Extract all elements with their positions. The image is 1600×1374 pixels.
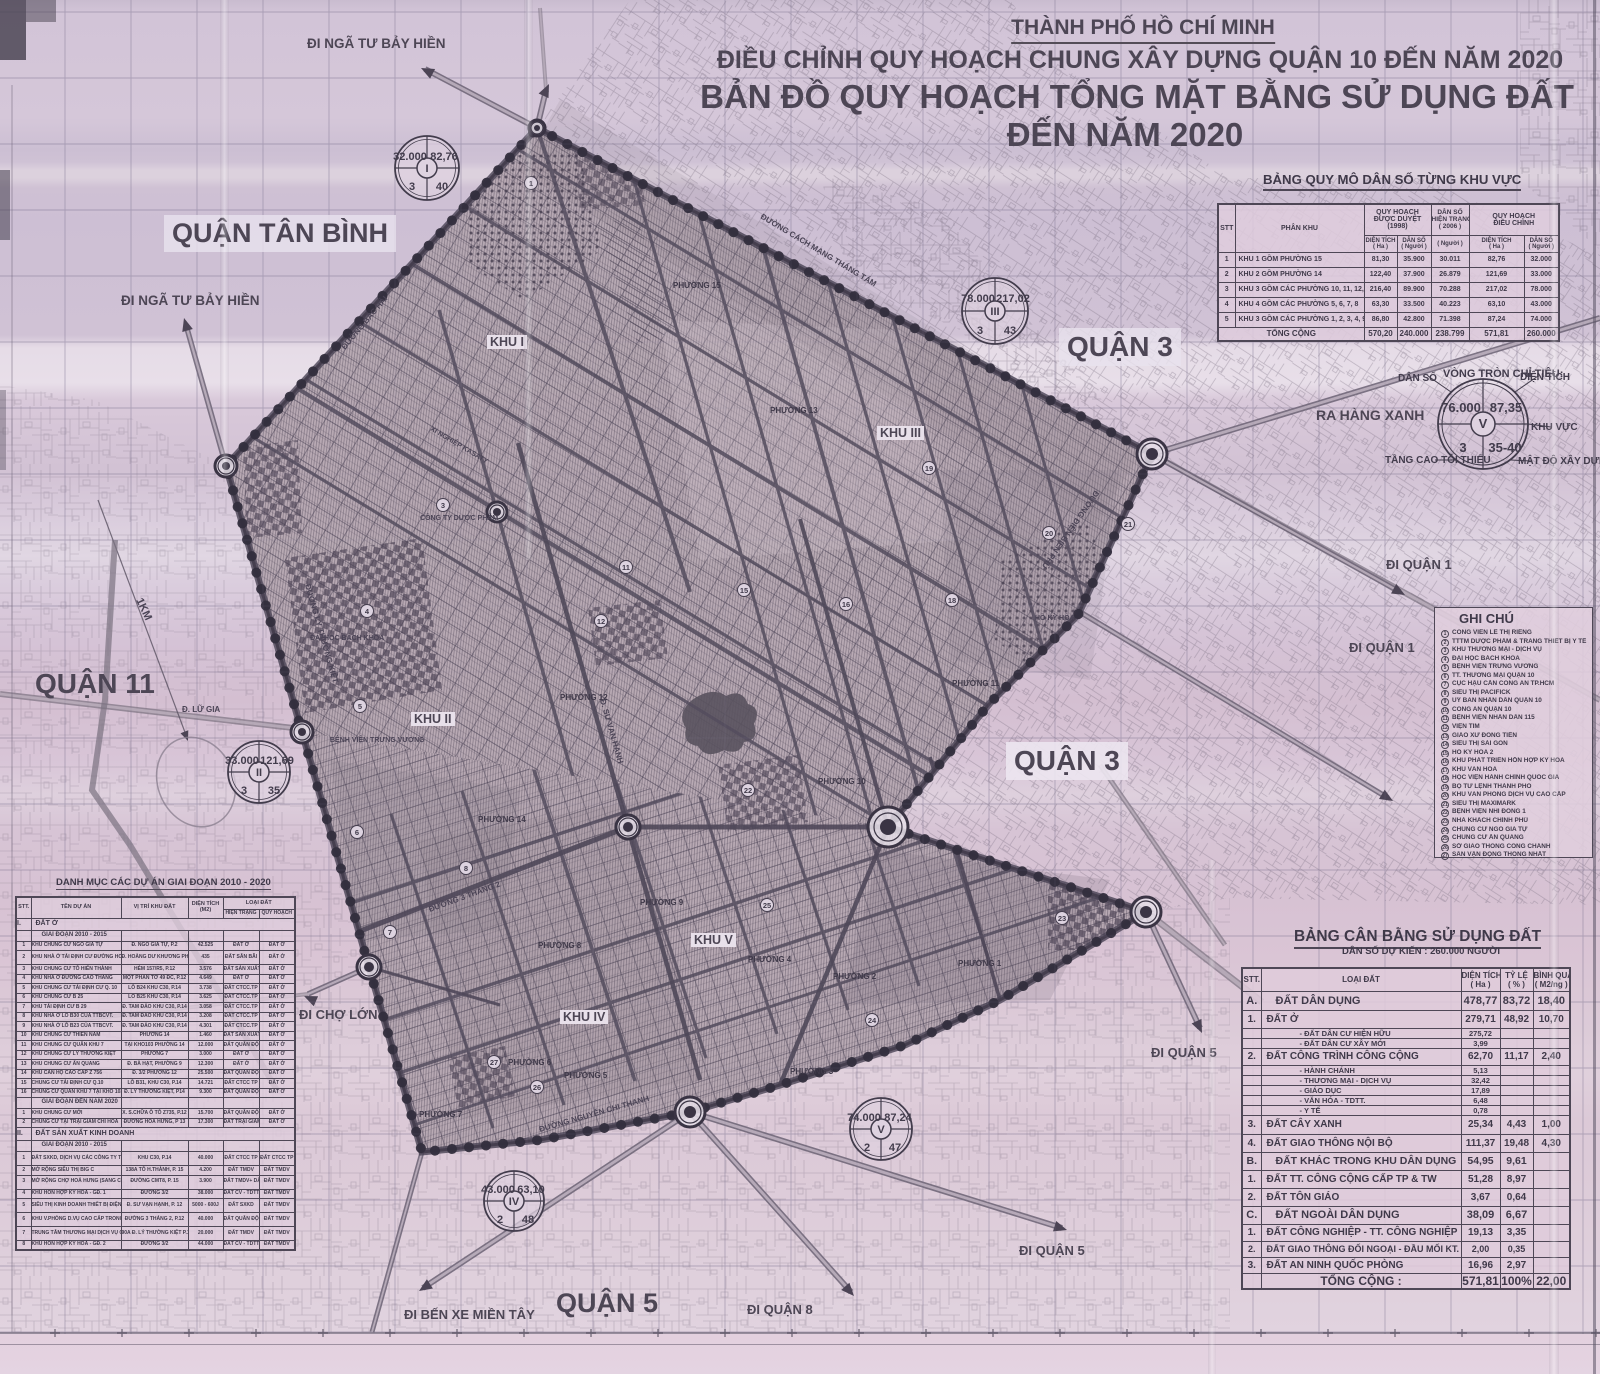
svg-text:2: 2: [864, 1142, 870, 1154]
svg-text:PHƯỜNG 6: PHƯỜNG 6: [508, 1058, 552, 1067]
svg-text:III: III: [990, 306, 999, 318]
svg-text:74.000: 74.000: [847, 1112, 881, 1124]
svg-text:12: 12: [597, 617, 605, 626]
svg-text:63,10: 63,10: [517, 1184, 545, 1196]
svg-text:6: 6: [355, 828, 359, 837]
svg-text:43: 43: [1004, 325, 1016, 337]
svg-text:5: 5: [358, 702, 362, 711]
svg-text:PHƯỜNG 14: PHƯỜNG 14: [478, 815, 526, 824]
svg-text:HỒ KỲ HÒA: HỒ KỲ HÒA: [1035, 612, 1075, 622]
svg-text:ĐƯỜNG LÝ THƯỜNG KIỆT: ĐƯỜNG LÝ THƯỜNG KIỆT: [303, 583, 340, 684]
svg-text:82,76: 82,76: [430, 151, 458, 163]
svg-text:15: 15: [740, 586, 748, 595]
svg-text:3: 3: [1459, 440, 1466, 455]
svg-text:IV: IV: [509, 1196, 520, 1208]
svg-text:PHƯỜNG 9: PHƯỜNG 9: [640, 898, 684, 907]
svg-text:7: 7: [388, 928, 392, 937]
svg-text:35-40: 35-40: [1488, 440, 1521, 455]
svg-text:78.000: 78.000: [961, 293, 995, 305]
svg-text:ĐƯỜNG CÁCH MẠNG THÁNG TÁM: ĐƯỜNG CÁCH MẠNG THÁNG TÁM: [759, 212, 878, 289]
svg-text:76.000: 76.000: [1441, 400, 1481, 415]
svg-text:TẦNG CAO TỐI THIỂU: TẦNG CAO TỐI THIỂU: [1385, 452, 1491, 466]
svg-text:II: II: [256, 767, 262, 779]
svg-text:18: 18: [948, 596, 956, 605]
svg-text:I: I: [425, 163, 428, 175]
svg-text:V: V: [1479, 416, 1488, 431]
svg-text:19: 19: [925, 464, 933, 473]
svg-text:25: 25: [763, 901, 771, 910]
svg-text:Đ. SƯ VẠN HẠNH: Đ. SƯ VẠN HẠNH: [598, 698, 625, 765]
svg-text:24: 24: [868, 1016, 877, 1025]
svg-text:43.000: 43.000: [481, 1184, 515, 1196]
svg-text:11: 11: [622, 563, 630, 572]
svg-text:ĐƯỜNG BẮC HẢI: ĐƯỜNG BẮC HẢI: [340, 294, 390, 351]
svg-text:1KM: 1KM: [133, 596, 154, 622]
svg-text:3: 3: [441, 501, 445, 510]
svg-text:ĐƯỜNG 3 THÁNG 2: ĐƯỜNG 3 THÁNG 2: [428, 879, 502, 913]
svg-text:23: 23: [1058, 914, 1066, 923]
svg-text:PHƯỜNG 11: PHƯỜNG 11: [952, 679, 1000, 688]
svg-text:3: 3: [241, 785, 247, 797]
svg-text:35: 35: [268, 785, 280, 797]
svg-text:3: 3: [409, 181, 415, 193]
svg-text:16: 16: [842, 600, 850, 609]
svg-text:XI NGHIỆP KASATY: XI NGHIỆP KASATY: [429, 424, 490, 466]
svg-text:PHƯỜNG 5: PHƯỜNG 5: [564, 1071, 608, 1080]
svg-text:217,02: 217,02: [996, 293, 1030, 305]
svg-text:ĐƯỜNG NGUYỄN CHI THANH: ĐƯỜNG NGUYỄN CHI THANH: [538, 1094, 650, 1134]
svg-text:27: 27: [490, 1058, 498, 1067]
svg-text:CÔNG TY DƯỢC PHẨM: CÔNG TY DƯỢC PHẨM: [420, 513, 498, 522]
svg-text:PHƯỜNG 13: PHƯỜNG 13: [770, 406, 818, 415]
svg-text:2: 2: [497, 1214, 503, 1226]
svg-text:BỆNH VIỆN TRƯNG VƯƠNG: BỆNH VIỆN TRƯNG VƯƠNG: [330, 735, 425, 744]
svg-text:PHƯỜNG 2: PHƯỜNG 2: [833, 972, 877, 981]
svg-text:26: 26: [533, 1083, 541, 1092]
svg-text:PHƯỜNG 10: PHƯỜNG 10: [818, 777, 866, 786]
svg-text:PHƯỜNG 8: PHƯỜNG 8: [538, 941, 582, 950]
svg-text:121,69: 121,69: [260, 755, 294, 767]
svg-text:20: 20: [1045, 529, 1053, 538]
svg-text:PHƯỜNG 3: PHƯỜNG 3: [790, 1067, 834, 1076]
svg-text:PHƯỜNG 7: PHƯỜNG 7: [419, 1110, 463, 1119]
svg-text:32.000: 32.000: [393, 151, 427, 163]
svg-text:33.000: 33.000: [225, 755, 259, 767]
svg-text:22: 22: [744, 786, 752, 795]
svg-text:87,24: 87,24: [884, 1112, 912, 1124]
svg-text:87,35: 87,35: [1490, 400, 1523, 415]
svg-text:MẬT ĐỘ XÂY DỰNG: MẬT ĐỘ XÂY DỰNG: [1518, 454, 1600, 467]
svg-text:3: 3: [977, 325, 983, 337]
svg-text:47: 47: [889, 1142, 901, 1154]
svg-text:Đ. LỮ GIA: Đ. LỮ GIA: [182, 705, 220, 714]
svg-text:DÂN SỐ: DÂN SỐ: [1398, 370, 1437, 384]
svg-text:21: 21: [1124, 520, 1132, 529]
svg-text:PHƯỜNG 15: PHƯỜNG 15: [673, 281, 721, 290]
svg-text:DIỆN TÍCH: DIỆN TÍCH: [1520, 370, 1570, 383]
svg-text:48: 48: [522, 1214, 534, 1226]
svg-text:ĐẠI HỌC BÁCH KHOA: ĐẠI HỌC BÁCH KHOA: [310, 633, 384, 642]
svg-text:40: 40: [436, 181, 448, 193]
svg-text:PHƯỜNG 1: PHƯỜNG 1: [958, 959, 1002, 968]
svg-text:V: V: [877, 1124, 885, 1136]
svg-text:PHƯỜNG 4: PHƯỜNG 4: [748, 955, 792, 964]
svg-text:8: 8: [464, 864, 468, 873]
